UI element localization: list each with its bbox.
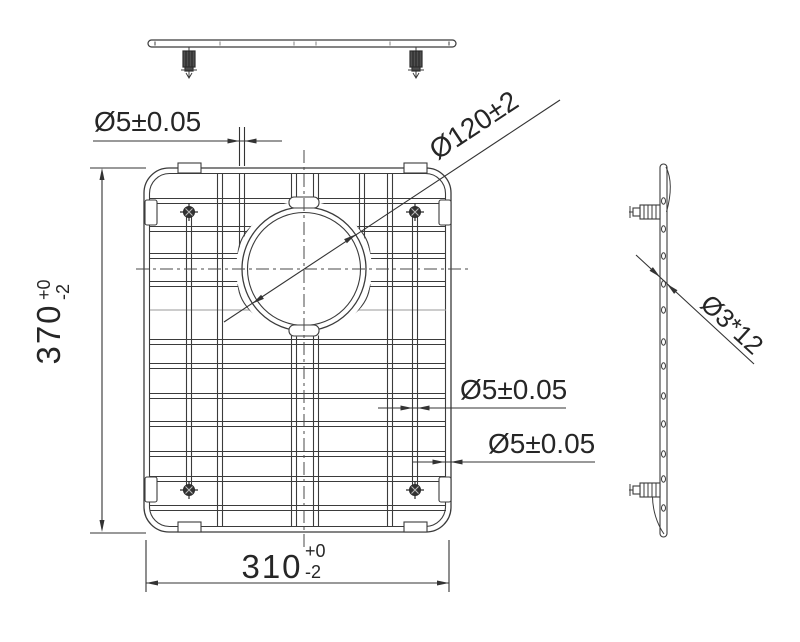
label-width: 310 +0 -2 <box>241 541 325 585</box>
edge-tab <box>178 163 201 173</box>
arrowhead <box>401 406 413 411</box>
technical-drawing-page: Ø5±0.05 Ø120±2 Ø5±0.05 Ø5±0.05 Ø3*12 370… <box>0 0 800 642</box>
screw <box>406 481 424 499</box>
label-width-tol-plus: +0 <box>305 541 326 561</box>
dim-wire-frame <box>413 460 595 465</box>
label-wire-dia-frame: Ø5±0.05 <box>488 428 595 459</box>
side-clip <box>145 477 157 502</box>
arrowhead <box>146 581 158 586</box>
side-view-foot-bottom <box>629 483 660 497</box>
label-width-tol-minus: -2 <box>305 562 321 582</box>
arrowhead <box>433 460 445 465</box>
edge-tab <box>178 522 201 532</box>
side-view <box>629 164 754 537</box>
top-view-bar-end-ticks <box>155 42 449 46</box>
side-view-foot-top <box>629 205 660 219</box>
side-view-bottom-hook <box>653 496 665 534</box>
top-view-foot-left <box>181 47 197 78</box>
edge-tab <box>404 163 427 173</box>
screw <box>406 203 424 221</box>
dim-wire-mid <box>378 406 566 411</box>
side-clip <box>145 200 157 225</box>
top-view <box>148 40 456 78</box>
label-height-value: 370 <box>30 303 67 364</box>
arrowhead <box>418 406 430 411</box>
label-wire-dia-top: Ø5±0.05 <box>94 106 201 137</box>
arrowhead <box>228 139 240 144</box>
label-wire-dia-mid: Ø5±0.05 <box>460 374 567 405</box>
arrowhead <box>437 581 449 586</box>
side-clip <box>439 477 451 502</box>
label-hole-dia: Ø120±2 <box>424 85 524 166</box>
arrowhead <box>100 168 105 180</box>
side-clip <box>439 200 451 225</box>
arrowhead <box>451 460 463 465</box>
label-width-value: 310 <box>241 548 302 585</box>
arrowhead <box>100 520 105 532</box>
top-view-wire-ticks <box>220 42 390 46</box>
label-height: 370 +0 -2 <box>30 279 73 364</box>
edge-tab <box>404 522 427 532</box>
label-foot-spec: Ø3*12 <box>695 288 770 360</box>
dim-height <box>90 168 146 533</box>
front-view <box>136 150 472 548</box>
top-view-foot-right <box>408 47 424 78</box>
drawing-canvas: Ø5±0.05 Ø120±2 Ø5±0.05 Ø5±0.05 Ø3*12 370… <box>0 0 800 642</box>
label-height-tol-plus: +0 <box>34 279 54 300</box>
label-height-tol-minus: -2 <box>53 284 73 300</box>
screw <box>180 481 198 499</box>
side-view-wire-ticks <box>662 198 666 511</box>
screw <box>180 203 198 221</box>
top-view-bar <box>148 40 456 47</box>
arrowhead <box>245 139 257 144</box>
